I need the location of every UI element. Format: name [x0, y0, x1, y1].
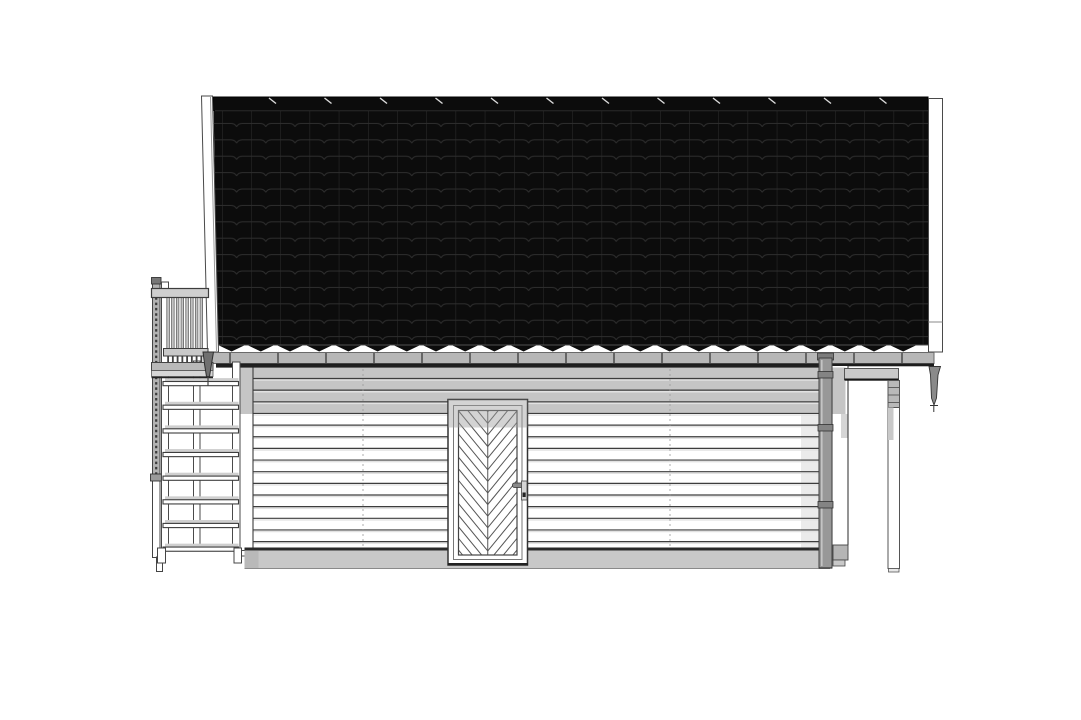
door-handle-plate	[522, 481, 528, 500]
balcony-deck-trim	[152, 371, 214, 377]
door-keyhole	[523, 493, 526, 498]
stair-edge-rail	[153, 284, 161, 480]
facade	[216, 353, 848, 586]
right-gable-board	[929, 99, 943, 353]
corner-shadow-step	[841, 414, 848, 438]
downpipe	[818, 353, 834, 568]
wall-top-edge	[216, 365, 832, 368]
downpipe-collar	[818, 372, 833, 379]
stair-guard-bar	[163, 476, 239, 480]
stair-rail-cap	[152, 278, 162, 285]
post-shade-strip	[888, 408, 894, 441]
stair-guard-bar	[163, 547, 239, 551]
door-threshold	[448, 563, 528, 566]
plinth-top-edge	[245, 548, 831, 551]
balcony-baluster	[176, 298, 179, 349]
stair-guard-bar	[163, 500, 239, 504]
entrance-door	[448, 376, 528, 586]
downpipe-shadow	[801, 414, 819, 548]
balcony-baluster	[172, 298, 175, 349]
stair-guard-bar	[163, 523, 239, 527]
stair-rail-clamp	[151, 474, 163, 481]
stair-guard-bar	[163, 452, 239, 456]
balcony-baluster	[191, 298, 194, 349]
stair-guard-bar	[163, 382, 239, 386]
balcony-deck-fascia	[152, 363, 214, 371]
downpipe-body	[819, 358, 832, 568]
balcony-baluster	[200, 298, 203, 349]
stair-left-foot	[158, 548, 166, 563]
corner-foot-base	[833, 560, 845, 566]
plinth-left-step	[245, 551, 259, 569]
elevation-drawing-canvas	[0, 0, 1081, 720]
ridge-cap-band	[214, 97, 929, 111]
door-top-shadow	[448, 400, 528, 428]
corner-foot-block	[833, 545, 848, 560]
leanto-post-foot	[889, 569, 900, 573]
stair-guard-bar	[163, 405, 239, 409]
downpipe-collar	[818, 502, 833, 509]
stair-rail-lower-post	[153, 480, 161, 558]
downpipe-collar	[818, 425, 833, 432]
plinth	[245, 549, 831, 569]
roof-tile-pattern	[214, 100, 929, 345]
leanto-header-beam	[845, 369, 899, 380]
balcony-baluster	[195, 298, 198, 349]
balcony-bottom-rail	[164, 349, 209, 357]
stair-right-foot	[234, 548, 242, 563]
roof	[214, 97, 929, 352]
balcony-baluster	[181, 298, 184, 349]
stair-guard-bar	[163, 429, 239, 433]
leanto-post-cap	[888, 381, 900, 408]
balcony-baluster	[186, 298, 189, 349]
elevation-drawing	[0, 0, 1081, 720]
balcony-baluster	[167, 298, 170, 349]
balcony-top-rail	[152, 289, 209, 298]
